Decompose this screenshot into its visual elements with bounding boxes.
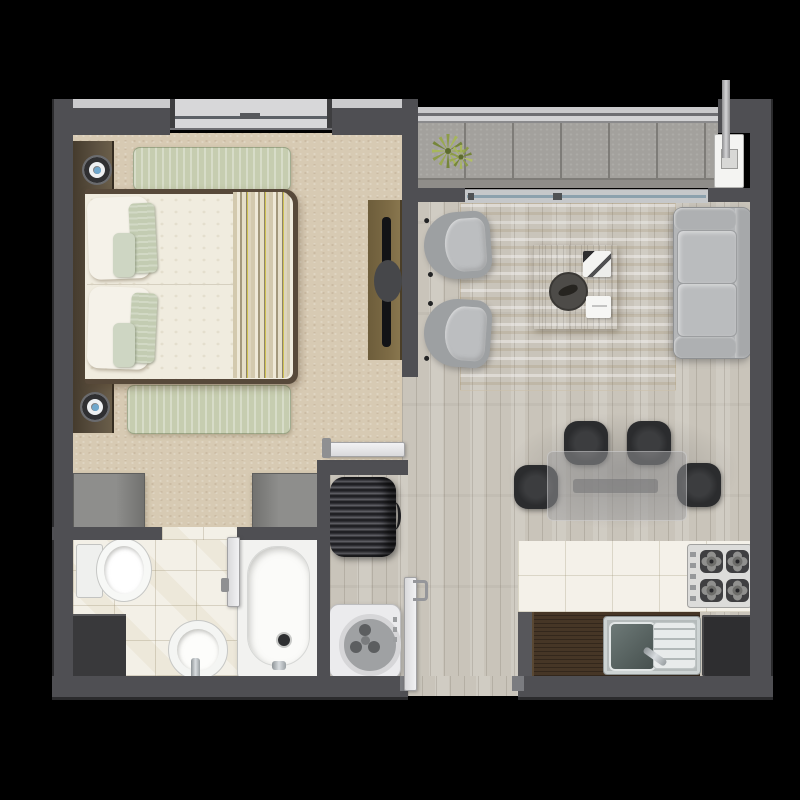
burner (700, 579, 723, 602)
kitchen-end-cabinet (702, 615, 752, 676)
washer-lid (339, 614, 401, 676)
sliding-door-handle (468, 193, 474, 200)
washer-button (393, 627, 397, 632)
bathroom-doorway-floor (162, 527, 237, 540)
burner (726, 579, 749, 602)
wall-left (52, 99, 73, 700)
sofa-armrest-bottom (674, 336, 736, 358)
coffee-table-book (583, 251, 611, 277)
wall-bottom-right (518, 676, 773, 700)
bathtub (237, 532, 320, 680)
washer-button (393, 617, 397, 622)
lamp-center (94, 167, 101, 174)
drum-center-cap (361, 636, 370, 645)
armchair-seat (444, 305, 489, 362)
wall-right (750, 99, 773, 700)
bedside-lamp-top (84, 157, 110, 183)
sofa-backrest (735, 208, 751, 358)
washer-button (393, 637, 397, 642)
sliding-door-handle (553, 193, 562, 200)
bathroom-door-knob (221, 578, 229, 592)
entry-threshold-floor (408, 676, 518, 696)
burner (726, 550, 749, 573)
bathtub-basin (247, 546, 310, 666)
bathroom-door-leaf (227, 537, 240, 607)
sofa-cushion-top (677, 230, 737, 284)
drum-hole (350, 641, 362, 653)
bedroom-window (170, 99, 332, 130)
bedside-lamp-bottom (82, 394, 108, 420)
bed-striped-runner (233, 192, 290, 378)
coffee-table (533, 245, 617, 329)
wall-bathroom-north-left (52, 527, 162, 540)
coffee-table-card (586, 296, 611, 318)
wall-laundry-west (317, 460, 330, 680)
water-heater-handle (388, 502, 401, 530)
window-handle (240, 113, 260, 119)
bed-rug-head-strip (133, 147, 291, 191)
decor-tray (549, 272, 588, 311)
tv-speaker-oval (374, 260, 402, 302)
window-post (170, 99, 175, 128)
floor-plan-canvas (0, 0, 800, 800)
bedroom-door-leaf (325, 442, 405, 457)
washing-machine (329, 604, 401, 679)
balcony-sliding-door (465, 189, 708, 203)
bedroom-door-knob (322, 438, 331, 458)
wall-stub-below-bedroom-door (317, 460, 408, 475)
accent-pillow-small-bottom (113, 323, 135, 367)
bed-rug-foot-strip (127, 385, 291, 434)
wall-sliding-stub-right (708, 188, 750, 202)
burner (700, 550, 723, 573)
wall-sliding-stub-left (412, 188, 465, 202)
entry-door-handle (413, 580, 428, 601)
vent-pipe (722, 80, 730, 158)
toilet-seat (104, 546, 144, 594)
bathtub-drain (278, 634, 290, 646)
double-bed (85, 189, 298, 384)
sliding-door-glass (467, 195, 706, 198)
balcony-plant (428, 128, 480, 180)
accent-pillow-small-top (113, 233, 135, 277)
wall-bedroom-living-divider (402, 99, 418, 377)
balcony-railing (418, 107, 718, 123)
gas-cooktop (687, 544, 752, 608)
wall-bottom-left (52, 676, 408, 700)
toilet-bowl (96, 538, 152, 602)
kitchen-sink (603, 616, 701, 675)
entry-jamb-right (512, 676, 524, 691)
water-heater-tank (330, 477, 396, 557)
sink-basin (609, 622, 656, 671)
sofa-cushion-bottom (677, 283, 737, 337)
drum-hole (368, 641, 380, 653)
mattress-split-line (87, 284, 233, 285)
bathroom-corner-counter (72, 614, 126, 678)
sofa-armrest-top (674, 208, 736, 230)
tray-decor-leaf (557, 283, 579, 298)
wardrobe-right (252, 473, 319, 529)
wardrobe-left (73, 473, 145, 529)
dining-table-base (573, 479, 658, 493)
lamp-center (92, 404, 99, 411)
bathtub-faucet (272, 661, 286, 670)
plant-cluster-large (432, 134, 465, 168)
armchair-seat (444, 217, 489, 273)
wall-bathroom-north-right (237, 527, 330, 540)
wall-kitchen-jamb (518, 612, 532, 676)
sofa (673, 207, 752, 359)
apartment-floor-plan (0, 0, 800, 800)
drum-hole (359, 624, 371, 636)
